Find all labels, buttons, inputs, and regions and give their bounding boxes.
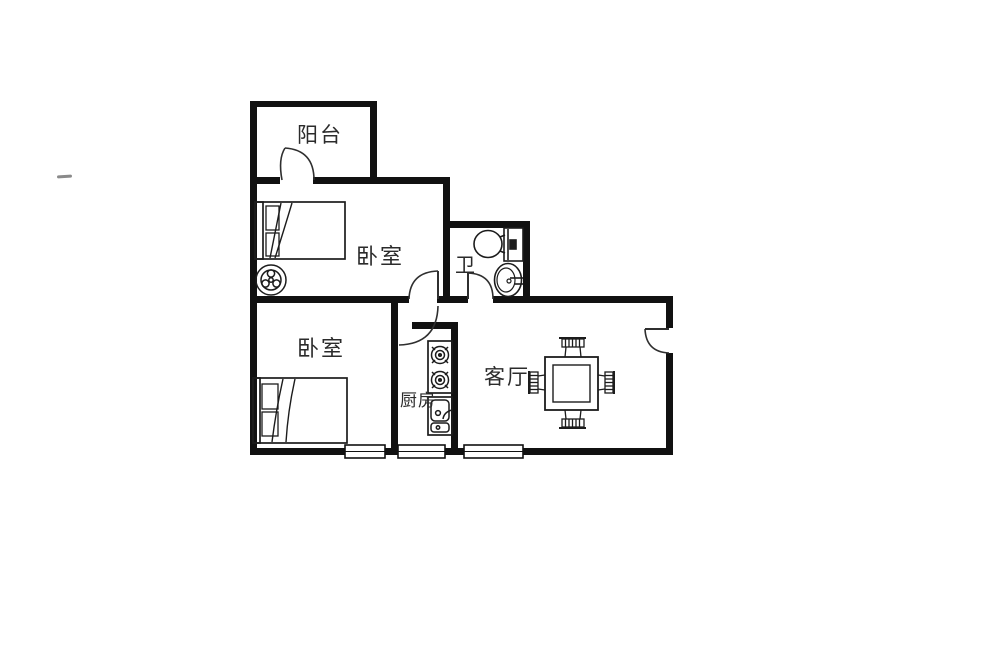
room-label-bathroom: 卫 bbox=[455, 256, 477, 276]
chair-icon bbox=[598, 371, 614, 394]
dining-table-icon bbox=[529, 338, 614, 428]
wall bbox=[445, 448, 464, 455]
room-label-balcony: 阳台 bbox=[297, 125, 343, 146]
windows bbox=[345, 445, 523, 458]
floor-plan-canvas: 阳台 卧室 卫 卧室 厨房 客厅 bbox=[0, 0, 1000, 653]
room-label-kitchen: 厨房 bbox=[400, 392, 436, 409]
double-bed-icon bbox=[255, 202, 345, 259]
wall bbox=[250, 101, 377, 107]
walls bbox=[250, 101, 673, 455]
chair-icon bbox=[559, 410, 586, 428]
room-label-living-room: 客厅 bbox=[484, 367, 530, 388]
gas-stove-icon bbox=[428, 341, 452, 393]
window-icon bbox=[398, 445, 445, 458]
wall bbox=[250, 448, 345, 455]
window-icon bbox=[464, 445, 523, 458]
wall bbox=[385, 448, 398, 455]
wall bbox=[250, 296, 409, 303]
wall bbox=[391, 298, 398, 451]
fan-icon bbox=[256, 265, 286, 295]
wash-basin-icon bbox=[495, 264, 524, 297]
wall bbox=[250, 177, 280, 184]
wall bbox=[443, 177, 450, 303]
wall bbox=[666, 296, 673, 328]
door-arc-icon bbox=[281, 148, 314, 180]
door-arc-icon bbox=[409, 271, 438, 299]
chair-icon bbox=[559, 338, 586, 357]
door-arc-icon bbox=[645, 329, 669, 353]
wall bbox=[437, 296, 468, 303]
room-label-bedroom-bottom: 卧室 bbox=[297, 338, 345, 360]
wall bbox=[523, 448, 673, 455]
wall bbox=[370, 101, 377, 183]
chair-icon bbox=[529, 371, 545, 394]
toilet-icon bbox=[474, 228, 523, 261]
wall bbox=[523, 221, 530, 303]
wall bbox=[493, 296, 673, 303]
wall bbox=[666, 353, 673, 455]
window-icon bbox=[345, 445, 385, 458]
wall bbox=[313, 177, 450, 184]
wall bbox=[443, 221, 530, 228]
room-label-bedroom-top: 卧室 bbox=[356, 246, 404, 268]
floor-plan-drawing bbox=[0, 0, 1000, 653]
double-bed-icon bbox=[253, 378, 347, 443]
